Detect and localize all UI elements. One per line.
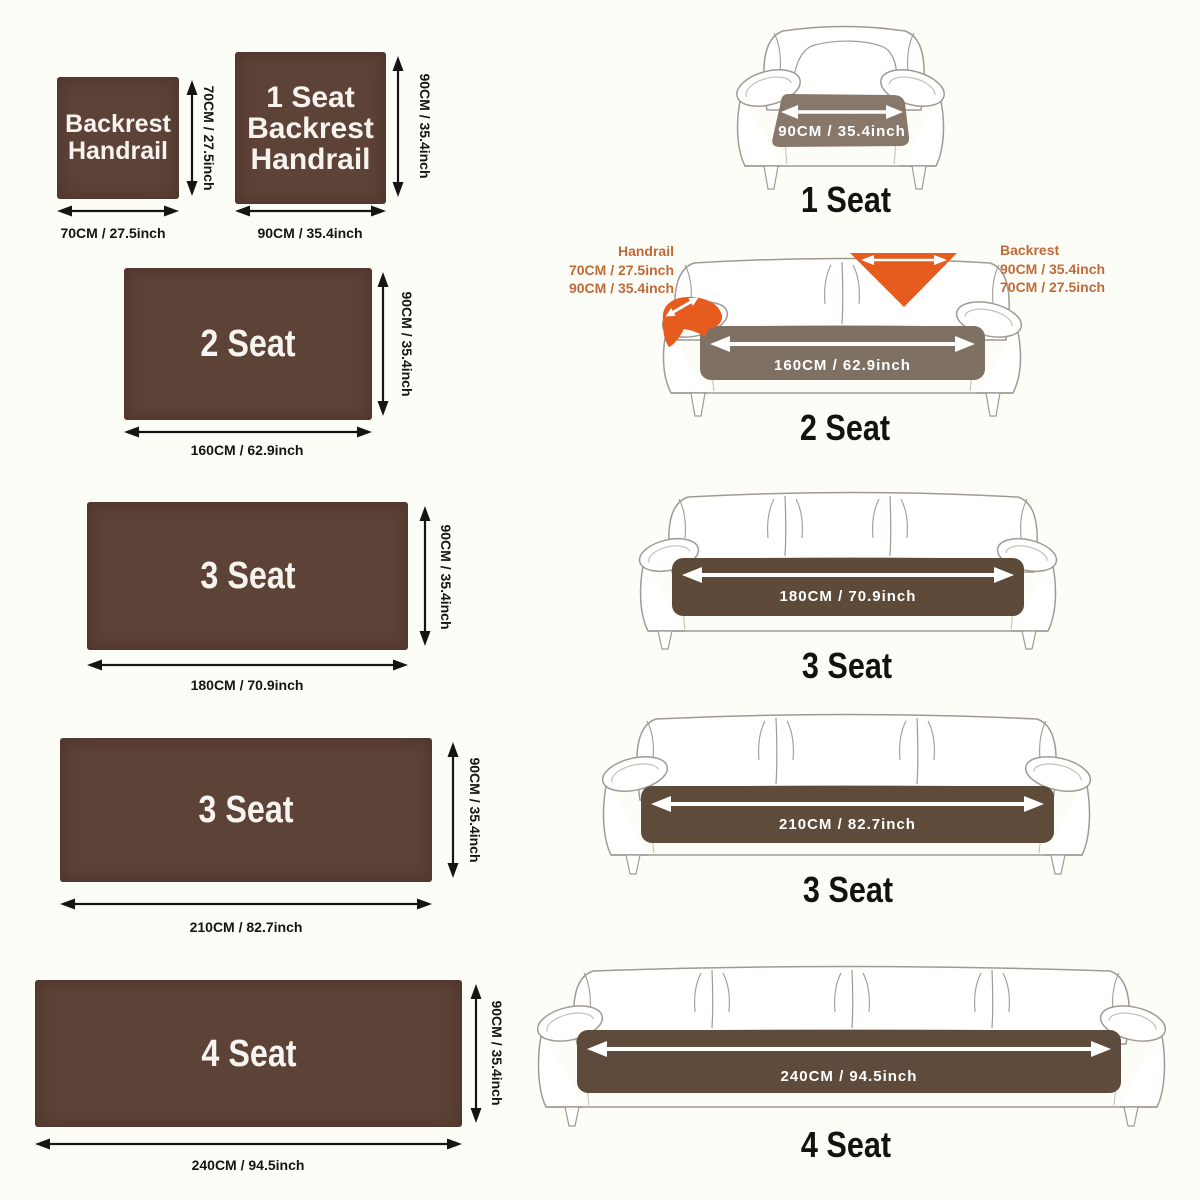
svg-text:240CM / 94.5inch: 240CM / 94.5inch	[781, 1068, 918, 1085]
svg-text:180CM / 70.9inch: 180CM / 70.9inch	[780, 588, 917, 605]
svg-text:90CM / 35.4inch: 90CM / 35.4inch	[778, 123, 906, 140]
svg-text:210CM / 82.7inch: 210CM / 82.7inch	[779, 816, 916, 833]
svg-text:160CM / 62.9inch: 160CM / 62.9inch	[774, 357, 911, 374]
